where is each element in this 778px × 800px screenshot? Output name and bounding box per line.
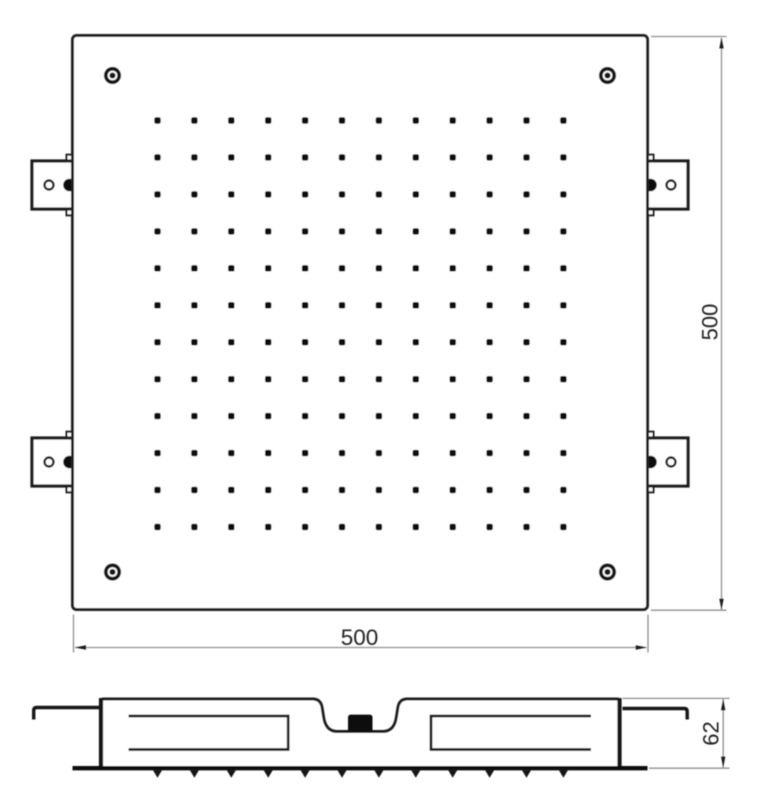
svg-text:500: 500 bbox=[341, 625, 379, 650]
svg-text:62: 62 bbox=[699, 721, 724, 745]
svg-text:500: 500 bbox=[698, 304, 723, 341]
